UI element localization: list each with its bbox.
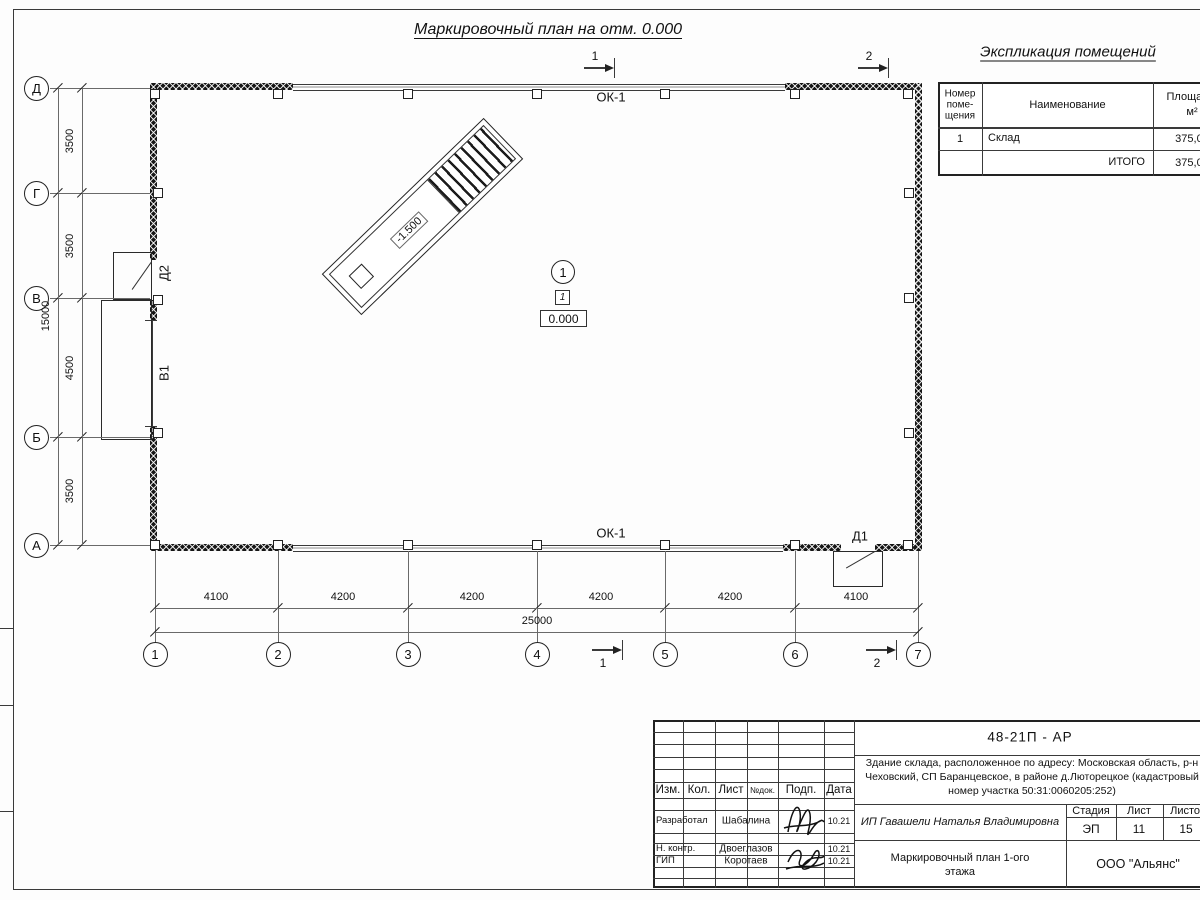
explication-grid (1153, 82, 1154, 176)
frame-bottom (13, 889, 1200, 890)
titleblock-sheets-value: 15 (1179, 822, 1192, 836)
section-number: 2 (866, 49, 873, 63)
column (153, 428, 163, 438)
axis-bubble-letter: А (24, 533, 49, 558)
dim-label-left-total: 15000 (40, 301, 52, 332)
dim-label-left: 3500 (64, 479, 76, 503)
column (150, 89, 160, 99)
titleblock-sheet-label: Лист (1127, 805, 1151, 817)
explication-cell-name: ИТОГО (988, 156, 1145, 168)
explication-grid (938, 127, 1200, 129)
window-label-bottom: ОК-1 (596, 526, 625, 541)
axis-bubble-letter: Г (24, 181, 49, 206)
titleblock-grid (653, 878, 854, 879)
dim-label-left: 3500 (64, 128, 76, 152)
section-number: 1 (600, 656, 607, 670)
room-number-bubble: 1 (551, 260, 575, 284)
titleblock-sheet-value: 11 (1133, 822, 1145, 836)
titleblock-name: Двоеглазов (719, 844, 772, 855)
column (403, 540, 413, 550)
titleblock-drawing-name: этажа (945, 866, 975, 878)
section-number: 2 (874, 656, 881, 670)
frame-left (13, 9, 14, 890)
frame-fold-mark (0, 811, 13, 812)
section-tick (888, 58, 889, 78)
dim-label-bottom: 4200 (331, 591, 355, 603)
wall-segment (150, 427, 157, 551)
porch-d1 (833, 551, 883, 587)
plan-title: Маркировочный план на отм. 0.000 (414, 21, 682, 39)
axis-bubble-number: 5 (653, 642, 678, 667)
titleblock-header-cell: Подп. (786, 784, 817, 796)
titleblock-address-line: Здание склада, расположенное по адресу: … (866, 757, 1198, 769)
column (660, 89, 670, 99)
explication-title: Экспликация помещений (980, 44, 1156, 61)
porch-d2 (113, 252, 152, 300)
axis-line-number (795, 551, 796, 643)
axis-bubble-number: 2 (266, 642, 291, 667)
axis-line-letter (50, 193, 150, 194)
titleblock-grid (1066, 804, 1067, 888)
axis-bubble-number: 7 (906, 642, 931, 667)
door-d2-label: Д2 (157, 265, 172, 281)
column (903, 540, 913, 550)
gate-b1-label: В1 (157, 365, 172, 381)
column (532, 89, 542, 99)
explication-cell-area: 375,00 (1175, 133, 1200, 145)
titleblock-grid (653, 757, 854, 758)
dim-label-bottom: 4100 (844, 591, 868, 603)
titleblock-grid (1163, 804, 1164, 840)
section-arrowhead (879, 64, 888, 72)
axis-line-number (408, 551, 409, 643)
titleblock-name: Коротаев (724, 856, 767, 867)
ramp-pit-square (348, 263, 373, 288)
titleblock-grid (1066, 817, 1200, 818)
titleblock-sheets-label: Листов (1170, 805, 1200, 817)
titleblock-company: ООО "Альянс" (1096, 857, 1180, 871)
column (150, 540, 160, 550)
axis-line-number (278, 551, 279, 643)
axis-line-letter (50, 437, 150, 438)
drawing-sheet: Маркировочный план на отм. 0.000 Эксплик… (0, 0, 1200, 900)
ramp: -1.500 (322, 118, 523, 315)
frame-top (13, 9, 1200, 10)
titleblock-role: ГИП (656, 855, 675, 866)
room-marker-square: 1 (555, 290, 570, 305)
titleblock-date: 10.21 (828, 816, 851, 826)
titleblock-grid (715, 720, 716, 888)
titleblock-address-line: Чеховский, СП Баранцевское, в районе д.Л… (865, 771, 1199, 783)
section-arrowhead (605, 64, 614, 72)
explication-cell-name: Склад (988, 132, 1145, 144)
titleblock-role: Разработал (656, 815, 708, 826)
axis-line-number (537, 551, 538, 643)
dim-line-bottom-segments (155, 608, 918, 609)
dim-label-bottom: 4200 (589, 591, 613, 603)
axis-line-number (665, 551, 666, 643)
ramp-elevation-label: -1.500 (390, 211, 428, 248)
axis-bubble-number: 3 (396, 642, 421, 667)
titleblock-address-line: номер участка 50:31:0060205:252) (948, 785, 1116, 797)
axis-bubble-number: 4 (525, 642, 550, 667)
column (903, 89, 913, 99)
column (153, 295, 163, 305)
wall-segment (150, 83, 293, 90)
explication-header-number: Номер поме- щения (945, 88, 976, 121)
titleblock-doc-number: 48-21П - АР (987, 730, 1072, 745)
titleblock-stage-label: Стадия (1072, 805, 1110, 817)
frame-fold-mark (0, 628, 13, 629)
axis-bubble-letter: Д (24, 76, 49, 101)
dim-line-left-segments (82, 88, 83, 545)
column (904, 293, 914, 303)
titleblock-grid (1116, 804, 1117, 840)
titleblock-grid (653, 769, 854, 770)
section-tick (622, 640, 623, 660)
titleblock-grid (778, 720, 779, 888)
column (660, 540, 670, 550)
ramp-stairs (428, 126, 515, 212)
column (273, 540, 283, 550)
column (532, 540, 542, 550)
titleblock-header-cell: Кол. (688, 784, 711, 796)
section-number: 1 (592, 49, 599, 63)
axis-line-letter (50, 298, 150, 299)
section-arrowhead (613, 646, 622, 654)
titleblock-date: 10.21 (828, 844, 851, 854)
dim-label-bottom: 4200 (718, 591, 742, 603)
titleblock-date: 10.21 (828, 856, 851, 866)
signature (782, 836, 826, 874)
titleblock-name: Шабалина (722, 816, 770, 827)
titleblock-grid (854, 840, 1200, 841)
section-tick (614, 58, 615, 78)
titleblock-header-cell: Изм. (656, 784, 681, 796)
column (790, 89, 800, 99)
wall-segment (915, 83, 922, 551)
explication-grid (982, 82, 983, 176)
titleblock-grid (653, 744, 854, 745)
loading-platform (101, 300, 152, 440)
axis-bubble-number: 6 (783, 642, 808, 667)
explication-header-name: Наименование (1029, 99, 1105, 111)
dim-label-bottom: 4200 (460, 591, 484, 603)
axis-line-letter (50, 545, 150, 546)
column (790, 540, 800, 550)
window-label-top: ОК-1 (596, 90, 625, 105)
ramp-inner-outline: -1.500 (329, 125, 516, 308)
door-d1-label: Д1 (852, 529, 868, 544)
explication-header-area: Площадь, м² (1167, 90, 1200, 120)
section-arrowhead (887, 646, 896, 654)
dim-label-bottom: 4100 (204, 591, 228, 603)
wall-segment (785, 83, 922, 90)
explication-cell-area: 375,00 (1175, 157, 1200, 169)
axis-bubble-number: 1 (143, 642, 168, 667)
column (153, 188, 163, 198)
frame-fold-mark (0, 705, 13, 706)
titleblock-grid (653, 732, 854, 733)
column (904, 188, 914, 198)
titleblock-stage-value: ЭП (1082, 822, 1099, 836)
wall-segment (150, 544, 293, 551)
column (904, 428, 914, 438)
section-tick (896, 640, 897, 660)
titleblock-grid (683, 720, 684, 888)
dim-label-left: 4500 (64, 355, 76, 379)
axis-bubble-letter: Б (24, 425, 49, 450)
dim-label-left: 3500 (64, 233, 76, 257)
titleblock-client: ИП Гавашели Наталья Владимировна (861, 816, 1059, 828)
titleblock-header-cell: Дата (826, 784, 851, 796)
column (403, 89, 413, 99)
titleblock-header-cell: №док. (750, 785, 775, 795)
dim-label-bottom-total: 25000 (522, 615, 553, 627)
column (273, 89, 283, 99)
wall-segment (150, 83, 157, 260)
axis-line-letter (50, 88, 150, 89)
explication-cell-number: 1 (957, 133, 963, 145)
titleblock-role: Н. контр. (656, 843, 695, 854)
dim-line-bottom-total (155, 632, 918, 633)
titleblock-header-cell: Лист (719, 784, 744, 796)
titleblock-grid (653, 782, 854, 783)
floor-elevation-box: 0.000 (540, 310, 587, 327)
dim-line-left-total (58, 88, 59, 545)
explication-grid (938, 150, 1200, 151)
titleblock-drawing-name: Маркировочный план 1-ого (891, 852, 1030, 864)
